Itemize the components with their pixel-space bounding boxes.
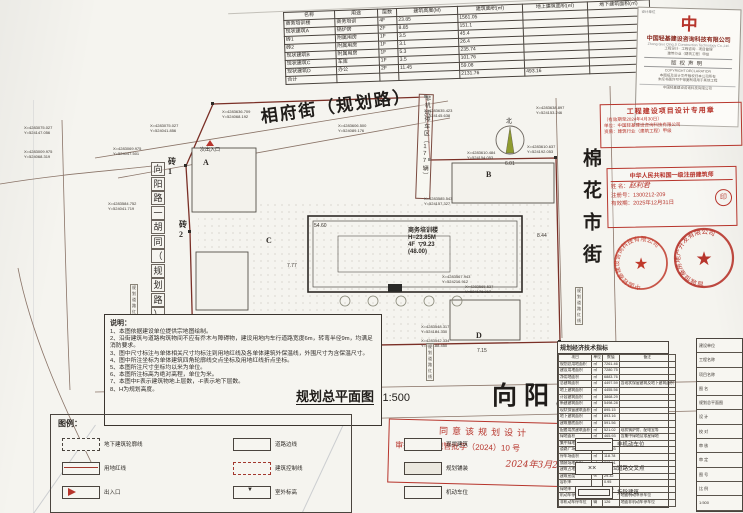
indicator-cell	[619, 361, 675, 368]
indicator-header-cell: 数值	[602, 355, 619, 362]
area-table-cell: 493.16	[525, 66, 590, 76]
indicator-cell: ㎡	[592, 420, 603, 427]
area-table-cell: 合计	[286, 75, 337, 85]
indicator-row: 建设用地面积㎡7280.75	[559, 368, 676, 375]
indicator-cell	[619, 374, 675, 381]
coordinate-y: Y=524047.501	[113, 152, 141, 157]
indicator-cell	[619, 368, 675, 375]
legend-label: 非机动车位	[617, 440, 645, 448]
drawing-title: 规划总平面图 1:500	[296, 386, 410, 406]
dashed-swatch-icon	[62, 438, 100, 451]
indicator-cell: 地下建筑面积	[559, 414, 592, 421]
coordinate-callout: X=4283636.709Y=524068.192	[222, 110, 250, 119]
area-table-cell	[399, 70, 460, 80]
building-name: 商务培训楼	[408, 228, 438, 235]
title-block-row: 规划总平面图	[697, 396, 742, 410]
indicator-cell	[619, 401, 675, 408]
building-letter-label: C	[266, 236, 272, 245]
architect-name: 赵利君	[629, 181, 650, 189]
title-block-row: 项目名称	[697, 368, 742, 382]
indicator-cell: 4455.56	[602, 387, 619, 394]
coordinate-callout: X=4283585.543Y=524157.327	[424, 197, 452, 206]
indicator-cell: ㎡	[592, 407, 603, 414]
company-round-seal-right: 晋城恒基房地产开发有限公司 ★	[672, 226, 736, 290]
street-name-hutong: 向阳路一胡同（规划路）	[151, 162, 165, 322]
elev-swatch-icon	[233, 486, 271, 499]
building-letter-label: A	[203, 158, 209, 167]
building-letter-label: B	[486, 170, 491, 179]
main-building-label: 商务培训楼 H=23.85M 4F ▽9.23 (48.00)	[408, 228, 438, 256]
legend-label: 出入口	[104, 488, 121, 496]
title-block-row: 图 名	[697, 382, 742, 396]
street-name-char: 规	[151, 264, 165, 278]
coordinate-callout: X=4283610.484Y=524154.053	[467, 151, 495, 160]
indicator-cell: 规划总用地面积	[559, 361, 592, 368]
legend-title: 图例：	[58, 418, 82, 429]
coordinate-callout: X=4283548.317Y=524184.330	[421, 325, 449, 334]
legend-label: 规划铺装	[446, 464, 468, 472]
title-block-row: 设 计	[697, 410, 742, 424]
legend-item: 规划铺装	[404, 456, 567, 480]
dimension-mark: 54.60	[314, 223, 327, 229]
indicator-row: 现状保留建筑面积㎡895.15	[559, 407, 676, 414]
legend-item: 机动车位	[404, 480, 567, 504]
coordinate-callout: X=4283567.943Y=524216.912	[442, 275, 470, 284]
legend-item: 非机动车位	[575, 432, 738, 456]
legend-item: 道路交叉点	[575, 456, 738, 480]
seal-star-icon: ★	[634, 256, 648, 273]
indicator-cell: 6883.76	[602, 374, 619, 381]
street-name-mianhuashi: 棉花市街	[577, 148, 604, 276]
coordinate-y: Y=524068.192	[222, 115, 250, 120]
indicator-row: 净用地面积㎡6883.76	[559, 374, 676, 381]
indicator-cell: 3868.29	[602, 394, 619, 401]
indicator-cell: ㎡	[592, 414, 603, 421]
coordinate-y: Y=524041.856	[150, 129, 178, 134]
title-block-row: 建设单位	[697, 339, 742, 353]
coordinate-callout: X=4283610.637Y=524192.053	[527, 145, 555, 154]
indicator-cell: 895.15	[602, 407, 619, 414]
building-letter-label: D	[476, 331, 482, 340]
coordinate-y: Y=524089.176	[338, 129, 366, 134]
coordinate-y: Y=524192.053	[527, 150, 555, 155]
indicator-cell	[619, 414, 675, 421]
coordinate-y: Y=524184.330	[421, 330, 449, 335]
cross-swatch-icon	[575, 462, 613, 475]
coordinate-y: Y=524068.319	[24, 155, 52, 160]
secondary-entrance-marker: 次出入口	[200, 140, 220, 153]
indicator-cell: 591.56	[602, 420, 619, 427]
company-logo-icon: 中	[641, 15, 737, 35]
coordinate-y: Y=524154.053	[467, 156, 495, 161]
indicator-cell: 5498.28	[602, 401, 619, 408]
street-name-char: 路	[151, 191, 165, 205]
note-item: 4、图中所注坐标为单体建筑四角轮廓线交点坐标及用地红线折点坐标。	[110, 358, 376, 365]
street-name-char: 向	[151, 162, 165, 176]
indicator-cell: 地上建筑面积	[559, 387, 592, 394]
legend-label: 机动车位	[446, 488, 468, 496]
indicator-cell: ㎡	[592, 381, 603, 388]
coordinate-y: Y=524176.917	[465, 290, 493, 295]
legend-item: 现状建筑	[404, 432, 567, 456]
indicator-cell: 新建建筑面积	[559, 401, 592, 408]
legend-item: 道路边线	[233, 432, 396, 456]
indicator-row: 新建建筑面积㎡5498.28	[559, 401, 676, 408]
note-item: 3、图中尺寸标注与单体相关尺寸均标注到用地红线及各单体建筑外保温线，外围尺寸为含…	[110, 351, 376, 358]
legend-label: 道路交叉点	[617, 464, 645, 472]
title-block-row: 工程名称	[697, 353, 742, 367]
indicator-cell: ㎡	[592, 368, 603, 375]
double-swatch-icon	[575, 486, 613, 499]
stamp-line: 资质：建筑行业（建筑工程）甲级	[604, 127, 738, 135]
area-table-cell: 2131.76	[460, 68, 525, 78]
compass-north-label: 北	[506, 116, 512, 125]
entrance-swatch-icon	[62, 486, 100, 499]
indicator-cell: 计容建筑面积	[559, 394, 592, 401]
indicator-row: 计容建筑面积㎡3868.29	[559, 394, 676, 401]
indicator-cell	[619, 394, 675, 401]
notes-box: 说明： 1、本图依据建设单位提供宗地图绘制。2、沿街建筑与道路构筑物间不应有乔木…	[104, 314, 382, 426]
drawing-title-name: 规划总平面图	[296, 389, 374, 405]
indicator-cell: ㎡	[592, 374, 603, 381]
coordinate-y: Y=524153.246	[536, 111, 564, 116]
indicator-table-title: 规划经济技术指标	[558, 342, 668, 354]
light-swatch-icon	[404, 462, 442, 475]
design-license-stamp: 工程建设项目设计专用章 （有效期至2024年4月30日） 单位：中国轻基建设咨询…	[600, 102, 743, 148]
plain-swatch-icon	[233, 438, 271, 451]
sub-entrance-label: 次出入口	[200, 146, 220, 153]
coordinate-callout: X=4283565.537Y=524176.917	[465, 285, 493, 294]
coordinate-callout: X=4283075.027Y=524041.856	[150, 124, 178, 133]
legend-item: 室外标高	[233, 480, 396, 504]
street-name-char: 划	[151, 278, 165, 292]
legend-label: 现状建筑	[446, 440, 468, 448]
coordinate-callout: X=4283009.975Y=524068.319	[24, 150, 52, 159]
legend-label: 地下建筑轮廓线	[104, 440, 143, 448]
indicator-cell	[619, 407, 675, 414]
dimension-mark: 7.77	[287, 263, 297, 269]
indicator-header-cell: 单位	[592, 355, 603, 362]
company-bottom-line: 中国轻基建设咨询科技有限公司	[639, 83, 735, 91]
indicator-row: 总建筑面积㎡4497.59含现状保留建筑及地下建筑面积	[559, 381, 676, 388]
indicator-cell: ㎡	[592, 394, 603, 401]
indicator-cell: 净用地面积	[559, 374, 592, 381]
indicator-row: 地下建筑面积㎡893.16	[559, 414, 676, 421]
indicator-cell: 总建筑面积	[559, 381, 592, 388]
drawing-title-scale: 1:500	[382, 392, 410, 404]
company-round-seal-left: 中国轻基建设咨询科技有限公司 ★	[612, 234, 670, 292]
notes-title: 说明：	[110, 318, 376, 328]
indicator-header-row: 项目单位数值备注	[559, 355, 676, 362]
indicator-cell: 含现状保留建筑及地下建筑面积	[619, 381, 675, 388]
indicator-cell: ㎡	[592, 401, 603, 408]
building-area-table: 名称用途层数建筑高度(M)建筑面积(㎡)地上建筑面积(㎡)地下建筑面积(㎡)商务…	[283, 0, 652, 85]
indicator-cell: 893.16	[602, 414, 619, 421]
legend-item: 拆除建筑	[575, 480, 738, 504]
coordinate-callout: X=4283075.027Y=524147.056	[24, 126, 52, 135]
indicator-cell: 4497.59	[602, 381, 619, 388]
street-name-char: 一	[151, 206, 165, 220]
note-item: 2、沿街建筑与道路构筑物间不应有乔木与障碍物，建设用地内车行道路宽度6m，转弯半…	[110, 336, 376, 350]
seal-star-icon: ★	[695, 249, 712, 270]
legend-label: 用地红线	[104, 464, 126, 472]
coordinate-y: Y=524145.638	[424, 114, 452, 119]
street-name-char: 路	[151, 293, 165, 307]
indicator-header-cell: 备注	[619, 355, 675, 362]
legend-label: 拆除建筑	[617, 488, 639, 496]
indicator-cell: 建设用地面积	[559, 368, 592, 375]
indicator-cell: ㎡	[592, 361, 603, 368]
coordinate-callout: X=4283638.897Y=524153.246	[536, 106, 564, 115]
redline-swatch-icon	[62, 462, 100, 475]
legend-item: 建筑控制线	[233, 456, 396, 480]
indicator-row: 建筑基底面积㎡591.56	[559, 420, 676, 427]
reddash-swatch-icon	[233, 462, 271, 475]
legend-item: 出入口	[62, 480, 225, 504]
indicator-row: 地上建筑面积㎡4455.56	[559, 387, 676, 394]
road-redline-label: 规划道路红线	[426, 343, 434, 381]
legend-grid: 地下建筑轮廓线用地红线出入口道路边线建筑控制线室外标高现状建筑规划铺装机动车位非…	[62, 432, 738, 504]
coordinate-y: Y=524147.056	[24, 131, 52, 136]
building-letter-label: 砖2	[179, 219, 187, 239]
legend-item: 用地红线	[62, 456, 225, 480]
area-table-cell	[380, 72, 399, 81]
legend-label: 建筑控制线	[275, 464, 303, 472]
architect-valid-date: 2025年12月31日	[633, 200, 674, 207]
area-table-cell	[337, 73, 380, 82]
building-height: H=23.85M	[408, 235, 438, 242]
indicator-header-cell: 项目	[559, 355, 592, 362]
building-letter-label: 砖1	[168, 156, 176, 176]
street-name-char: （	[151, 249, 165, 263]
plain-swatch-icon	[404, 438, 442, 451]
coordinate-callout: X=4283635.423Y=524145.638	[424, 109, 452, 118]
registered-architect-stamp: 中华人民共和国一级注册建筑师 姓 名：赵利君 注册号：1300212-209 有…	[606, 166, 737, 228]
legend-item: 地下建筑轮廓线	[62, 432, 225, 456]
bar-swatch-icon	[575, 438, 613, 451]
notes-list: 1、本图依据建设单位提供宗地图绘制。2、沿街建筑与道路构筑物间不应有乔木与障碍物…	[110, 329, 376, 394]
indicator-cell	[619, 387, 675, 394]
plain-swatch-icon	[404, 486, 442, 499]
indicator-cell: 现状保留建筑面积	[559, 407, 592, 414]
indicator-cell: 7280.75	[602, 368, 619, 375]
legend-label: 室外标高	[275, 488, 297, 496]
coordinate-callout: X=4283606.500Y=524089.176	[338, 124, 366, 133]
dimension-mark: 8.44	[537, 233, 547, 239]
dimension-mark: 7.15	[477, 348, 487, 354]
coordinate-callout: X=4283069.975Y=524047.501	[113, 147, 141, 156]
coordinate-y: Y=524157.327	[424, 202, 452, 207]
legend-label: 道路边线	[275, 440, 297, 448]
coordinate-callout: X=4283584.752Y=524041.719	[108, 202, 136, 211]
architect-reg-no: 1300212-209	[633, 192, 666, 199]
street-name-char: 同	[151, 235, 165, 249]
street-name-char: 阳	[151, 177, 165, 191]
indicator-cell: 建筑基底面积	[559, 420, 592, 427]
road-redline-label: 规划道路红线	[575, 287, 583, 325]
street-name-char: 胡	[151, 220, 165, 234]
building-floors-elev: 4F ▽9.23	[408, 242, 438, 249]
scanned-site-plan-sheet: 名称用途层数建筑高度(M)建筑面积(㎡)地上建筑面积(㎡)地下建筑面积(㎡)商务…	[0, 0, 743, 513]
indicator-row: 规划总用地面积㎡7261.46	[559, 361, 676, 368]
indicator-cell: 7261.46	[602, 361, 619, 368]
coordinate-y: Y=524041.719	[108, 207, 136, 212]
dimension-mark: 6.01	[505, 161, 515, 167]
building-alt-elev: (48.00)	[408, 249, 438, 256]
indicator-cell: ㎡	[592, 387, 603, 394]
indicator-cell	[619, 420, 675, 427]
